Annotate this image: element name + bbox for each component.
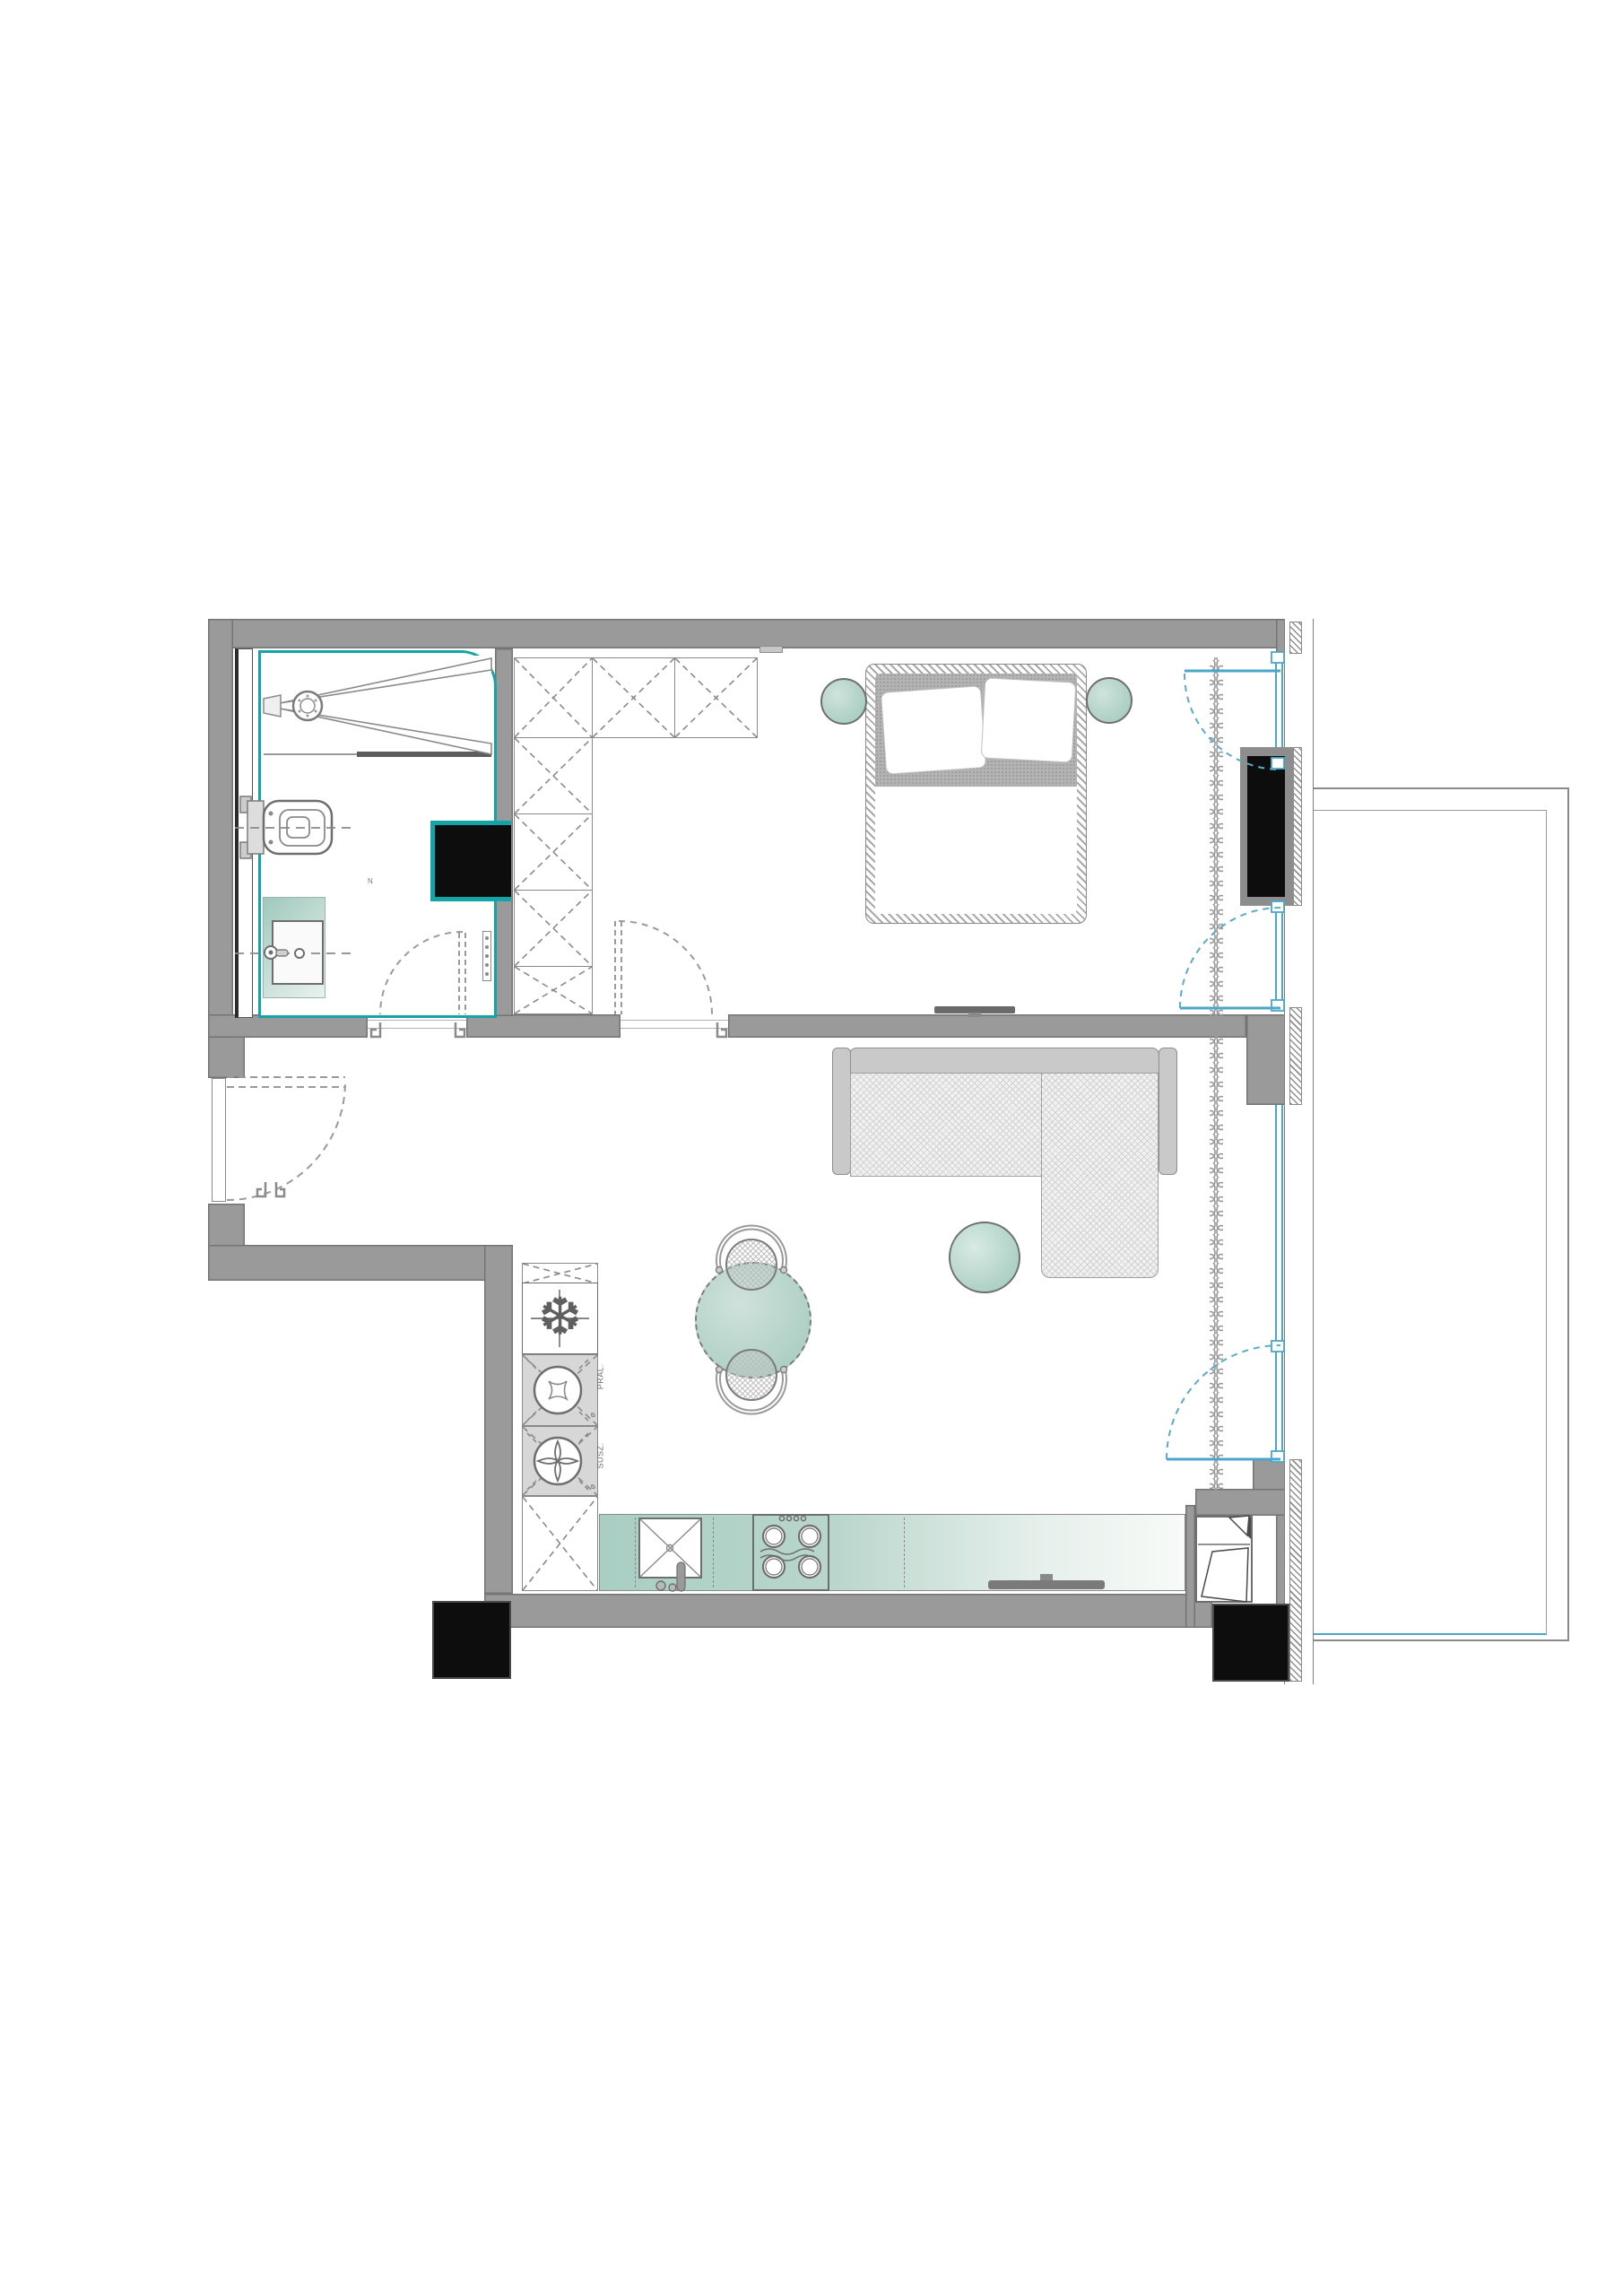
living-tv-stand [1040, 1574, 1053, 1580]
wardrobe-box-5 [514, 813, 593, 891]
bed-pillow-right [981, 677, 1077, 762]
bedside-table-right [1086, 677, 1133, 724]
wall-hall-bottom [208, 1245, 513, 1281]
wardrobe-box-2 [592, 657, 675, 738]
entrance-door-swing [227, 1077, 345, 1200]
sofa-backrest [849, 1048, 1159, 1074]
dryer-label: SUSZ. [596, 1442, 605, 1468]
coffee-table [949, 1222, 1020, 1293]
shower-glass-panel [357, 752, 491, 757]
wall-left-pier-above-entrance [208, 1033, 245, 1078]
sofa-seat [850, 1073, 1042, 1177]
bedroom-tv-stand [968, 1013, 981, 1017]
dining-table [695, 1262, 811, 1378]
insulation-band-pier2 [1289, 1007, 1302, 1105]
facade-pier-black [1247, 756, 1285, 897]
column-southeast [1212, 1604, 1289, 1682]
hob [752, 1514, 829, 1591]
bedside-table-left [820, 678, 867, 725]
insulation-band-top [1289, 622, 1302, 654]
wall-niche-left-strip [1185, 1505, 1195, 1628]
column-southwest [432, 1601, 511, 1679]
wardrobe-box-1 [514, 657, 593, 738]
wardrobe-box-3 [674, 657, 758, 738]
snowflake-icon: ❆ [538, 1283, 582, 1352]
balcony-inner-edge [1314, 810, 1547, 1635]
bedroom-door-threshold [621, 1020, 728, 1029]
wardrobe-box-4 [514, 737, 593, 814]
wall-trim-tick [759, 646, 783, 653]
fridge: ❆ [522, 1283, 598, 1354]
bath-sink-basin [272, 920, 324, 985]
wardrobe-box-6 [514, 890, 593, 967]
wall-top [208, 619, 1289, 648]
counter-divider-2 [713, 1518, 714, 1587]
shower-tray [264, 656, 491, 754]
bedroom-door [615, 921, 712, 1014]
bed-pillow-left [881, 685, 986, 775]
north-mark: N [368, 877, 373, 885]
curtain-line [1210, 657, 1223, 1500]
kitchen-top-box [522, 1263, 598, 1284]
wall-bedroom-bottom [728, 1014, 1246, 1038]
washer-label: PRAL. [595, 1364, 604, 1390]
washing-machine-box [522, 1354, 598, 1426]
bathroom-wall-panel [235, 648, 253, 1018]
sofa-armrest-left [832, 1048, 851, 1175]
living-tv [988, 1580, 1105, 1589]
sofa-armrest-right [1159, 1048, 1177, 1175]
insulation-band-bottom [1289, 1459, 1302, 1682]
kitchen-sink [638, 1518, 702, 1578]
kitchen-cabinet-box [522, 1496, 598, 1591]
wardrobe-box-7 [514, 966, 593, 1014]
counter-divider-3 [904, 1518, 905, 1587]
towel-rail [482, 931, 491, 981]
wall-bottom [484, 1594, 1212, 1628]
counter-divider-1 [635, 1518, 636, 1587]
wall-left-upper [208, 619, 233, 1038]
washer-diameter: ⌀ [587, 1413, 597, 1418]
entry-cabinet [1195, 1516, 1253, 1603]
wall-niche-top [1195, 1489, 1289, 1516]
entrance-door-leaf [212, 1078, 226, 1202]
wall-kitchen-west [484, 1245, 513, 1594]
dryer-box [522, 1426, 598, 1496]
door-stops [81, 1022, 726, 1196]
dryer-diameter: ⌀ [587, 1484, 597, 1490]
bathroom-door-threshold [368, 1020, 466, 1029]
sofa-chaise [1041, 1073, 1159, 1278]
bathroom-shaft-black [435, 825, 511, 897]
wall-facade-junction [1246, 1014, 1287, 1105]
floor-plan-page: N ❆ PRAL. ⌀ SUSZ. ⌀ [0, 0, 1623, 2296]
